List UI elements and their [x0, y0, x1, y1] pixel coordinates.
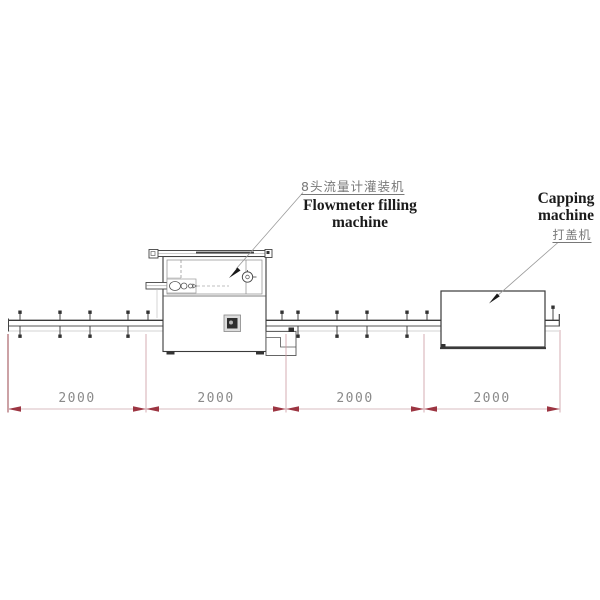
dimension-label-4: 2000 — [462, 391, 522, 406]
dimension-label-2: 2000 — [186, 391, 246, 406]
layout-drawing: 8头流量计灌装机 Flowmeter filling machine Cappi… — [0, 0, 600, 600]
logo-plate — [224, 315, 241, 332]
dimension-label-3: 2000 — [325, 391, 385, 406]
capping-machine-label-cn: 打盖机 — [546, 226, 598, 243]
drawing-linework — [0, 0, 600, 600]
capping-machine-label-en: Capping machine — [534, 190, 598, 225]
capping-machine-label-line2: machine — [534, 207, 598, 224]
filling-machine-label-en: Flowmeter filling machine — [298, 197, 422, 232]
filling-machine — [146, 250, 296, 356]
outfeed-step — [266, 328, 296, 356]
filling-machine-label-line2: machine — [298, 214, 422, 231]
filling-machine-label-cn: 8头流量计灌装机 — [301, 176, 404, 195]
dimension-label-1: 2000 — [47, 391, 107, 406]
capping-machine-label-line1: Capping — [534, 190, 598, 207]
filling-machine-label-line1: Flowmeter filling — [298, 197, 422, 214]
